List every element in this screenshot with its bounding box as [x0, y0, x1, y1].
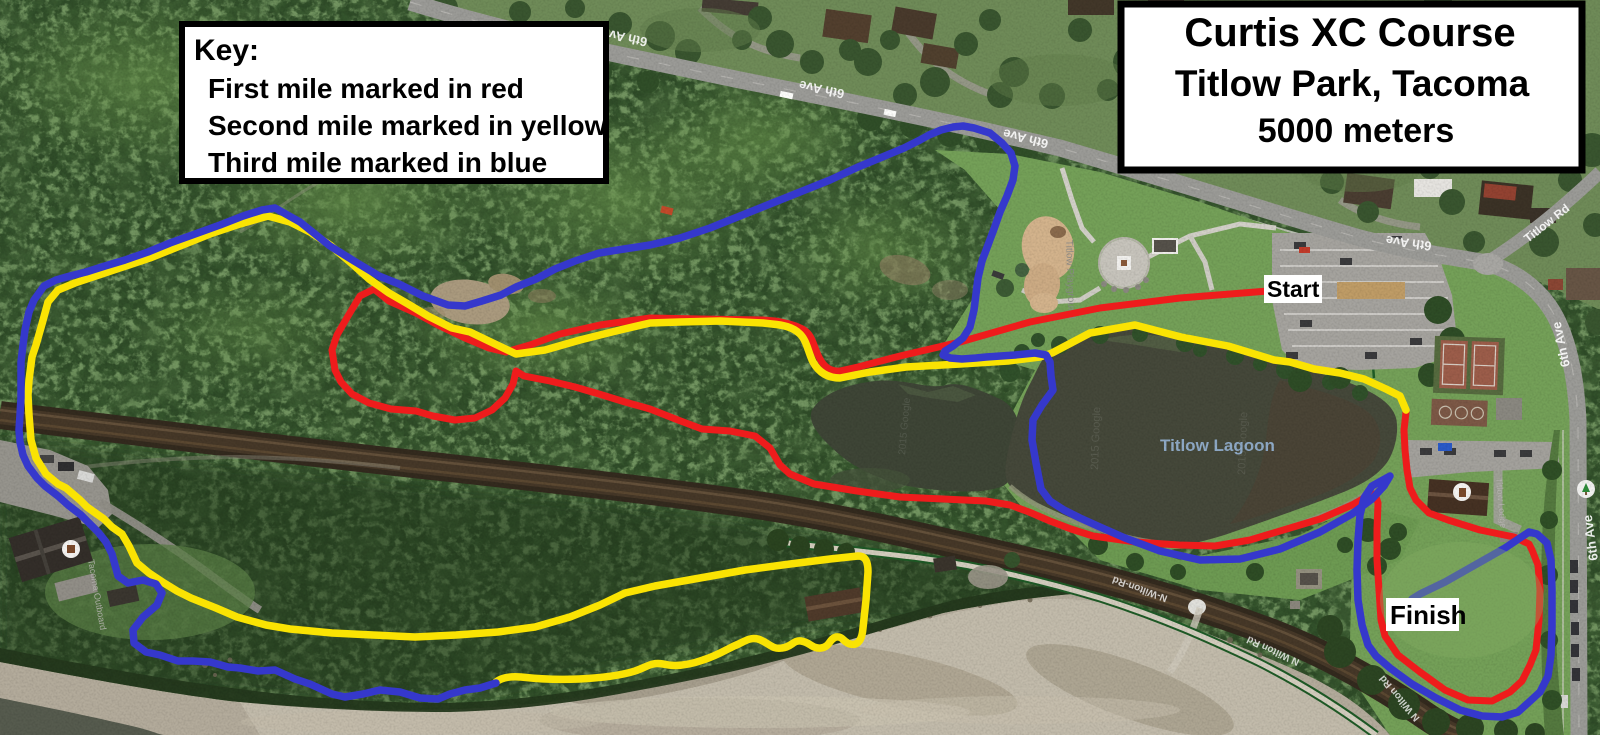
svg-text:Titlow Park, Tacoma: Titlow Park, Tacoma	[1175, 63, 1530, 104]
svg-text:Second mile marked in yellow: Second mile marked in yellow	[208, 110, 607, 141]
svg-text:Finish: Finish	[1390, 600, 1467, 630]
svg-text:Start: Start	[1267, 276, 1320, 302]
svg-text:Third mile marked in blue: Third mile marked in blue	[208, 147, 547, 178]
svg-text:5000 meters: 5000 meters	[1258, 112, 1455, 150]
svg-text:First mile marked in red: First mile marked in red	[208, 73, 524, 104]
svg-text:Curtis XC Course: Curtis XC Course	[1184, 11, 1515, 55]
svg-text:Key:: Key:	[194, 34, 259, 67]
